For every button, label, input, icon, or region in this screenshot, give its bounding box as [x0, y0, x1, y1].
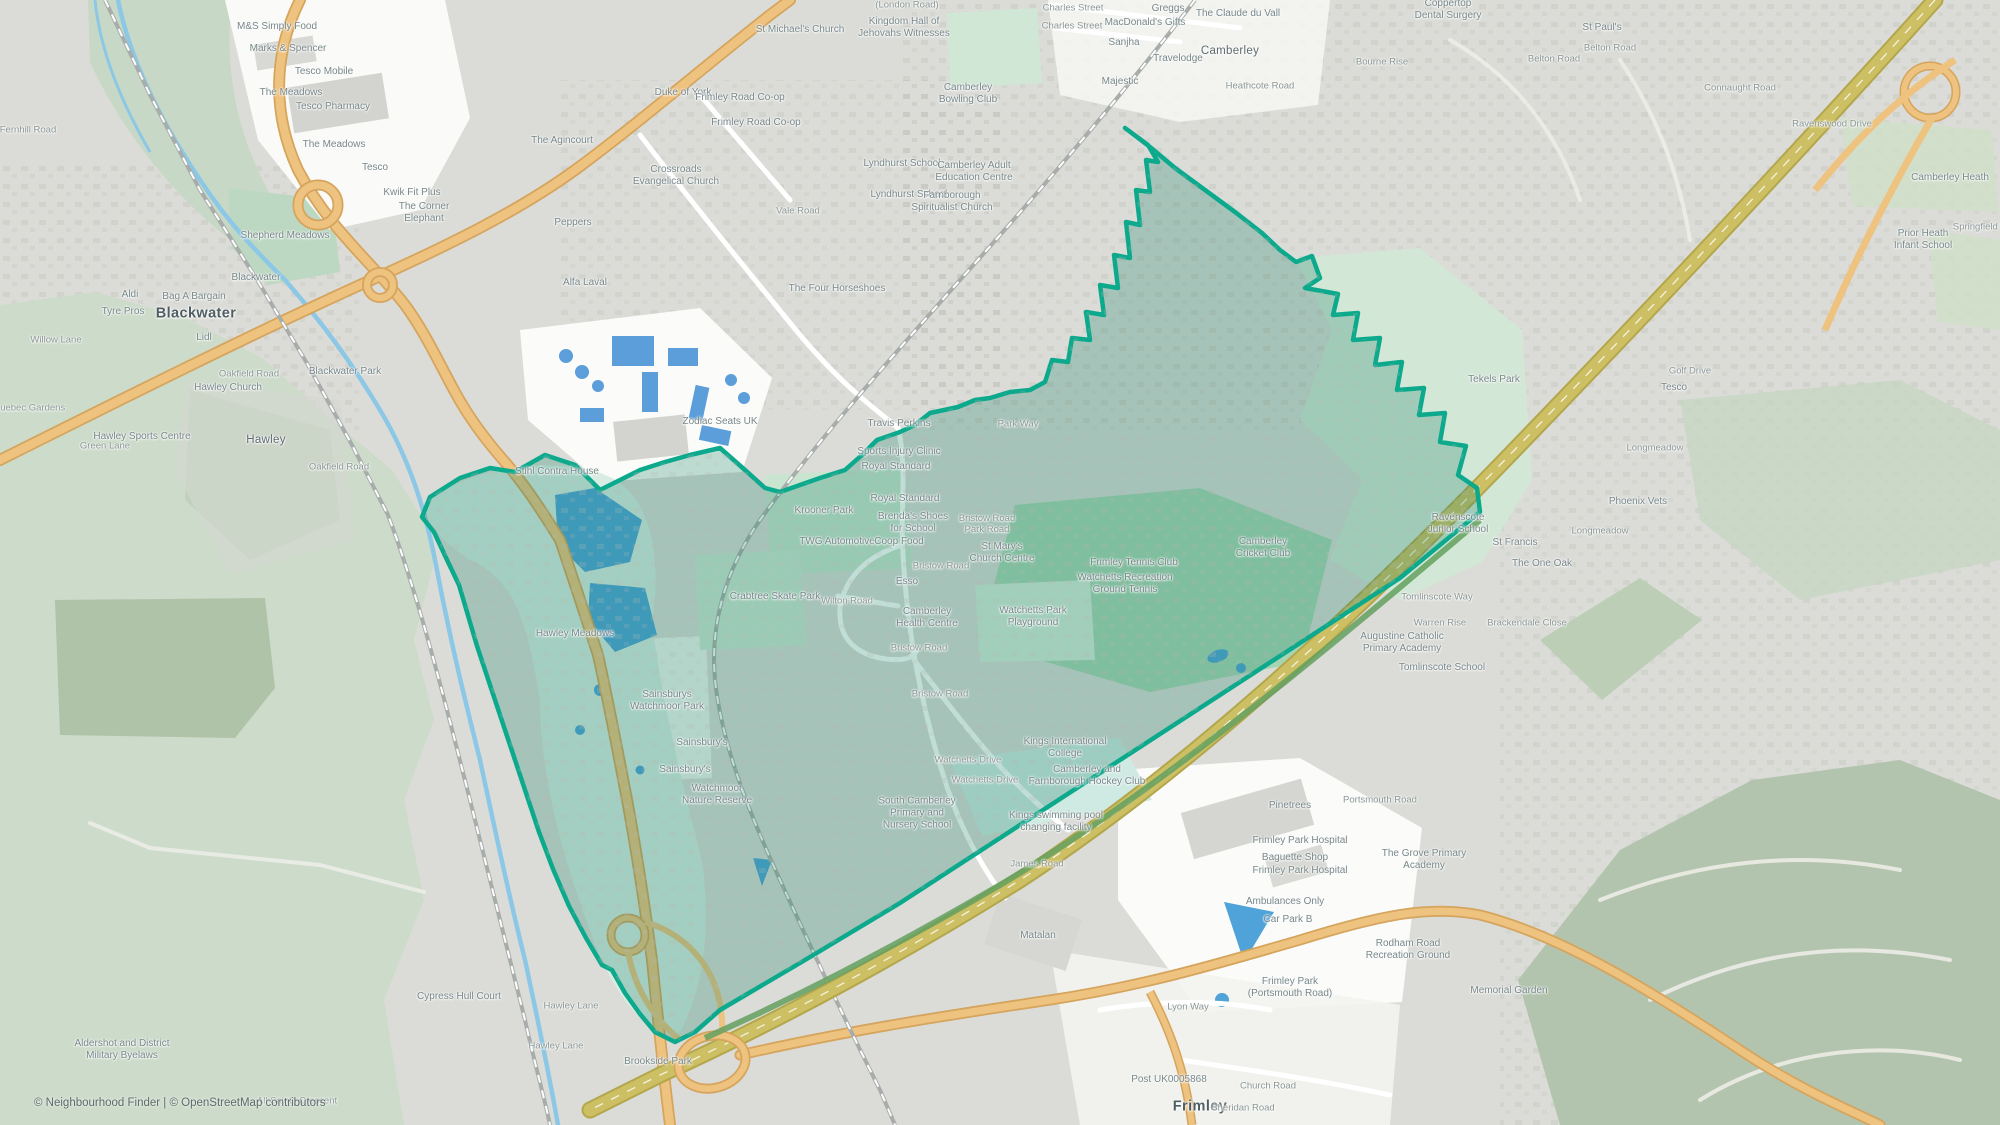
map-canvas[interactable]: BlackwaterFrimleyHawleyCamberleyM&S Simp… — [0, 0, 2000, 1125]
map-attribution: © Neighbourhood Finder | © OpenStreetMap… — [34, 1097, 326, 1109]
basemap-svg — [0, 0, 2000, 1125]
